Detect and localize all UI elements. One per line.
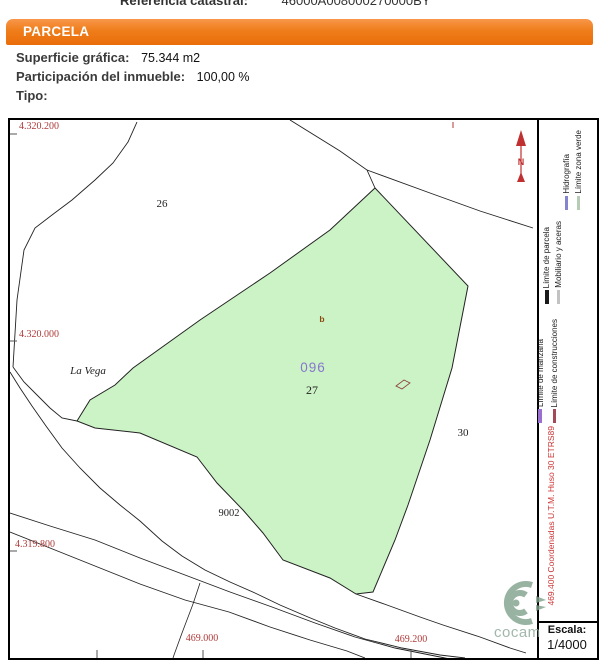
legend-hidrografia-swatch xyxy=(565,196,568,210)
superficie-label: Superficie gráfica: xyxy=(16,50,129,65)
legend-zona-verde-swatch xyxy=(577,196,580,210)
y-coord-4320200: 4.320.200 xyxy=(19,121,59,132)
subparcel-letter-label: b xyxy=(319,314,324,324)
participacion-label: Participación del inmueble: xyxy=(16,69,185,84)
superficie-value: 75.344 m2 xyxy=(141,51,200,65)
parcel-30-label: 30 xyxy=(458,427,470,439)
tipo-row: Tipo: xyxy=(16,88,56,103)
section-title: PARCELA xyxy=(23,24,89,39)
y-coord-4319800: 4.319.800 xyxy=(15,539,55,550)
legend-construcciones-swatch xyxy=(553,409,556,423)
legend-parcela-label: Límite de parcela xyxy=(542,227,552,288)
parcel-27-polygon xyxy=(77,188,468,594)
parcel-27-label: 27 xyxy=(306,383,318,397)
cocam-watermark-text: cocam xyxy=(494,624,541,641)
cadastral-reference-value: 46000A008000270000BY xyxy=(282,0,431,8)
legend-mobiliario-label: Mobiliario y aceras xyxy=(554,221,564,288)
parcela-section-bar: PARCELA xyxy=(6,19,593,45)
superficie-row: Superficie gráfica: 75.344 m2 xyxy=(16,50,200,65)
legend-mobiliario-swatch xyxy=(557,290,560,304)
legend-parcela-swatch xyxy=(545,290,549,304)
y-coord-4320000: 4.320.000 xyxy=(19,329,59,340)
cadastral-reference-row: Referencia catastral: 46000A008000270000… xyxy=(120,0,430,8)
cocam-watermark: cocam xyxy=(488,580,558,650)
cadastral-reference-label: Referencia catastral: xyxy=(120,0,248,8)
legend-hidrografia-label: Hidrografía xyxy=(562,154,572,194)
subparcel-code-label: 096 xyxy=(300,360,326,375)
legend-manzana-swatch xyxy=(538,409,542,423)
place-name-label: La Vega xyxy=(69,365,106,377)
legend-manzana-label: Límite de manzana xyxy=(536,339,546,407)
cadastral-map-frame: 4.320.200 4.320.000 4.319.800 469.000 46… xyxy=(8,118,599,660)
participacion-value: 100,00 % xyxy=(197,70,250,84)
legend-zona-verde-label: Límite zona verde xyxy=(574,130,584,194)
x-coord-469000: 469.000 xyxy=(186,633,219,644)
north-arrow-icon: N xyxy=(516,130,526,182)
parcel-26-label: 26 xyxy=(157,198,169,210)
north-label: N xyxy=(518,157,525,167)
path-to-bottom-border xyxy=(173,583,200,658)
boundary-line-top-center xyxy=(290,120,375,188)
legend-construcciones-label: Límite de construcciones xyxy=(550,319,560,408)
tipo-label: Tipo: xyxy=(16,88,48,103)
road-edge-upper-left xyxy=(13,367,77,421)
cadastral-map: 4.320.200 4.320.000 4.319.800 469.000 46… xyxy=(10,120,537,658)
cocam-logo-icon xyxy=(488,580,558,626)
parcel-9002-label: 9002 xyxy=(219,508,240,519)
participacion-row: Participación del inmueble: 100,00 % xyxy=(16,69,250,84)
x-coord-469200: 469.200 xyxy=(395,634,428,645)
